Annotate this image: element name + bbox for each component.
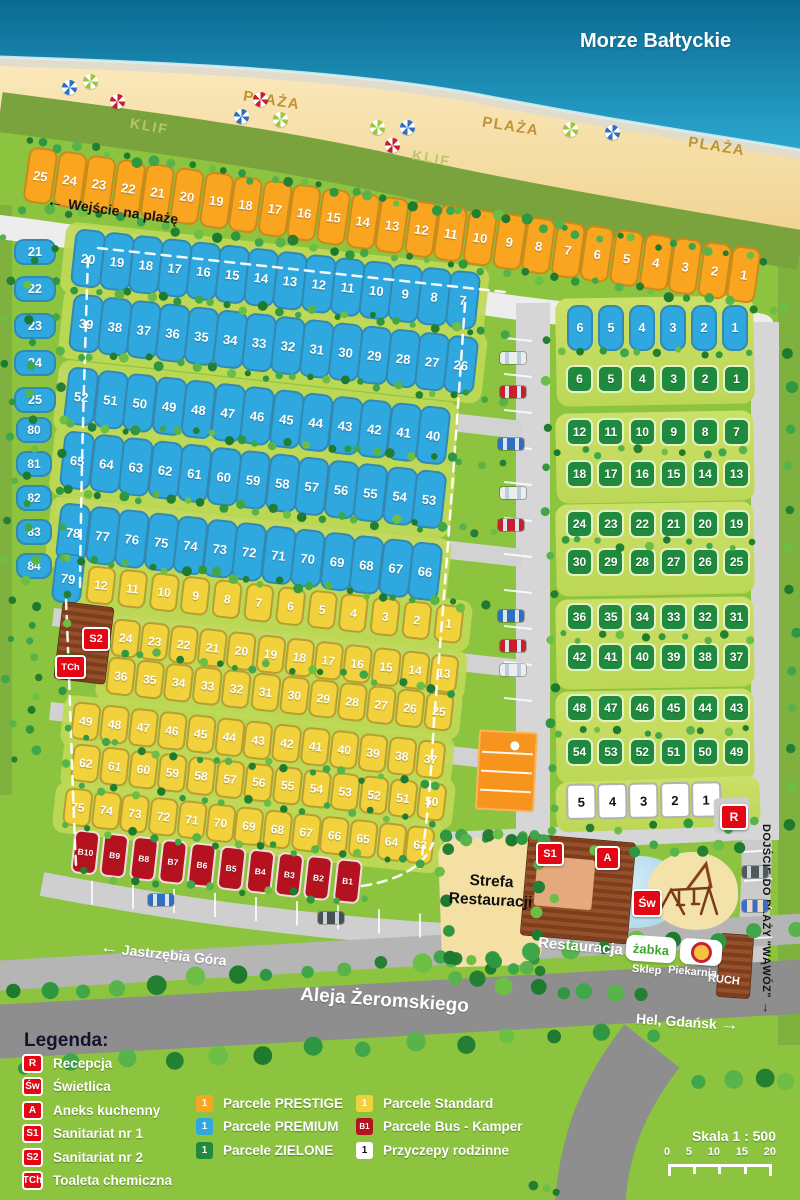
umbrella-icon [605, 125, 620, 140]
legend-label: Toaleta chemiczna [53, 1173, 172, 1188]
parked-car [500, 386, 526, 398]
parked-car [500, 664, 526, 676]
plot-bus-B1[interactable]: B1 [332, 858, 363, 905]
plot-zielone-46[interactable]: 46 [629, 694, 656, 722]
scale-ruler [668, 1164, 772, 1177]
legend-item-s2: S2Sanitariat nr 2 [22, 1146, 143, 1168]
legend-chip-white: 1 [356, 1142, 373, 1159]
plot-standard-16[interactable]: 16 [341, 644, 373, 685]
plot-premium-40[interactable]: 40 [414, 405, 451, 466]
parked-car [318, 912, 344, 924]
plot-zielone-2[interactable]: 2 [692, 365, 719, 393]
plot-zielone-16[interactable]: 16 [629, 460, 656, 488]
umbrella-icon [110, 94, 125, 109]
plot-standard-61[interactable]: 61 [99, 746, 131, 787]
plot-zielone-48[interactable]: 48 [566, 694, 593, 722]
plot-standard-48[interactable]: 48 [99, 704, 131, 745]
plot-zielone-6[interactable]: 6 [566, 365, 593, 393]
plot-standard-44[interactable]: 44 [213, 717, 245, 758]
plot-standard-30[interactable]: 30 [278, 675, 310, 716]
plot-zielone-30[interactable]: 30 [566, 548, 593, 576]
plot-standard-38[interactable]: 38 [386, 736, 418, 777]
scale-tick: 0 [664, 1146, 670, 1158]
plot-bus-B6[interactable]: B6 [187, 842, 218, 889]
legend-badge-s2: S2 [22, 1148, 43, 1167]
plot-zielone-31[interactable]: 31 [723, 603, 750, 631]
legend-chip-bus: B1 [356, 1118, 373, 1135]
plot-standard-9[interactable]: 9 [180, 575, 212, 616]
plot-standard-59[interactable]: 59 [156, 753, 188, 794]
plot-premium-83[interactable]: 83 [16, 519, 52, 545]
legend-badge-a: A [22, 1101, 43, 1120]
plot-premium-2[interactable]: 2 [691, 305, 717, 351]
clubroom-badge[interactable]: Św [632, 889, 662, 917]
left-arrow-icon: ← [45, 190, 66, 212]
plot-standard-7[interactable]: 7 [243, 582, 275, 623]
legend-item-zielone: 1Parcele ZIELONE [196, 1139, 333, 1161]
scale-tick: 10 [708, 1146, 720, 1158]
plot-standard-2[interactable]: 2 [401, 600, 433, 641]
plot-standard-11[interactable]: 11 [116, 568, 148, 609]
legend-item-r: RRecepcja [22, 1052, 112, 1074]
plot-zielone-47[interactable]: 47 [597, 694, 624, 722]
plot-standard-58[interactable]: 58 [185, 756, 217, 797]
legend-item-bus: B1Parcele Bus - Kamper [356, 1116, 523, 1138]
zabka-logo[interactable]: żabka [625, 934, 677, 963]
plot-zielone-32[interactable]: 32 [692, 603, 719, 631]
plot-standard-64[interactable]: 64 [376, 822, 408, 863]
plot-premium-22[interactable]: 22 [14, 276, 56, 302]
plot-premium-24[interactable]: 24 [14, 350, 56, 376]
plot-white-3[interactable]: 3 [628, 782, 659, 819]
plot-standard-49[interactable]: 49 [70, 701, 102, 742]
bakery-logo[interactable] [679, 938, 723, 967]
campground-map: 2524232221201918171615141312111098765432… [0, 0, 800, 1200]
umbrella-icon [370, 120, 385, 135]
plot-premium-5[interactable]: 5 [598, 305, 624, 351]
plot-zielone-33[interactable]: 33 [660, 603, 687, 631]
legend-item-white: 1Przyczepy rodzinne [356, 1139, 509, 1161]
plot-premium-25[interactable]: 25 [14, 387, 56, 413]
plot-standard-27[interactable]: 27 [365, 685, 397, 726]
legend-label: Przyczepy rodzinne [383, 1143, 509, 1158]
plot-zielone-51[interactable]: 51 [660, 738, 687, 766]
slide-icon [688, 864, 711, 888]
plot-standard-54[interactable]: 54 [300, 768, 332, 809]
plot-standard-63[interactable]: 63 [404, 825, 436, 866]
court-line [482, 751, 533, 756]
plot-standard-57[interactable]: 57 [214, 759, 246, 800]
legend-badge-tch: TCh [22, 1171, 43, 1190]
plot-standard-15[interactable]: 15 [370, 647, 402, 688]
plot-zielone-22[interactable]: 22 [629, 510, 656, 538]
plot-zielone-20[interactable]: 20 [692, 510, 719, 538]
kiosk-building [716, 933, 754, 999]
swing-icon [658, 888, 717, 914]
umbrella-icon [234, 109, 249, 124]
umbrella-icon [83, 74, 98, 89]
plot-standard-66[interactable]: 66 [319, 815, 351, 856]
plot-bus-B9[interactable]: B9 [99, 832, 130, 879]
plot-standard-3[interactable]: 3 [369, 596, 401, 637]
restaurant-zone-label: Strefa Restauracji [440, 869, 542, 912]
plot-standard-74[interactable]: 74 [90, 790, 122, 831]
legend-item-standard: 1Parcele Standard [356, 1092, 493, 1114]
plot-standard-6[interactable]: 6 [274, 586, 306, 627]
plot-premium-80[interactable]: 80 [16, 417, 52, 443]
plot-premium-21[interactable]: 21 [14, 239, 56, 265]
plot-standard-56[interactable]: 56 [243, 762, 275, 803]
plot-standard-73[interactable]: 73 [119, 793, 151, 834]
plot-premium-4[interactable]: 4 [629, 305, 655, 351]
plot-standard-20[interactable]: 20 [226, 631, 258, 672]
umbrella-icon [385, 138, 400, 153]
plot-zielone-40[interactable]: 40 [629, 643, 656, 671]
plot-zielone-9[interactable]: 9 [660, 418, 687, 446]
plot-zielone-7[interactable]: 7 [723, 418, 750, 446]
scale-tick: 15 [736, 1146, 748, 1158]
plot-premium-23[interactable]: 23 [14, 313, 56, 339]
plot-zielone-50[interactable]: 50 [692, 738, 719, 766]
plot-zielone-53[interactable]: 53 [597, 738, 624, 766]
plot-zielone-5[interactable]: 5 [597, 365, 624, 393]
right-arrow-icon: → [720, 1013, 739, 1034]
parked-car [742, 900, 768, 912]
plot-bus-B5[interactable]: B5 [216, 845, 247, 892]
legend-item-premium: 1Parcele PREMIUM [196, 1116, 339, 1138]
plot-standard-19[interactable]: 19 [254, 634, 286, 675]
down-arrow-icon: → [760, 1001, 775, 1014]
plot-bus-B10[interactable]: B10 [70, 829, 101, 876]
plot-zielone-12[interactable]: 12 [566, 418, 593, 446]
plot-zielone-11[interactable]: 11 [597, 418, 624, 446]
plot-zielone-21[interactable]: 21 [660, 510, 687, 538]
plot-prestige-1[interactable]: 1 [726, 245, 763, 304]
plot-standard-33[interactable]: 33 [192, 666, 224, 707]
umbrella-icon [253, 92, 268, 107]
parked-car [500, 640, 526, 652]
umbrella-icon [273, 112, 288, 127]
plot-standard-45[interactable]: 45 [185, 714, 217, 755]
plot-standard-23[interactable]: 23 [139, 621, 171, 662]
plot-white-2[interactable]: 2 [660, 782, 691, 819]
plot-bus-B8[interactable]: B8 [128, 835, 159, 882]
plot-premium-82[interactable]: 82 [16, 485, 52, 511]
plot-standard-4[interactable]: 4 [338, 593, 370, 634]
plot-standard-28[interactable]: 28 [336, 682, 368, 723]
plot-zielone-37[interactable]: 37 [723, 643, 750, 671]
sanitary1-badge[interactable]: S1 [536, 842, 564, 866]
umbrella-icon [563, 122, 578, 137]
scale-tick: 5 [686, 1146, 692, 1158]
plot-standard-70[interactable]: 70 [204, 803, 236, 844]
plot-standard-62[interactable]: 62 [70, 743, 102, 784]
plot-zielone-25[interactable]: 25 [723, 548, 750, 576]
plot-standard-72[interactable]: 72 [147, 796, 179, 837]
parked-car [498, 438, 524, 450]
plot-white-4[interactable]: 4 [597, 783, 628, 820]
legend-item-prestige: 1Parcele PRESTIGE [196, 1092, 343, 1114]
plot-zielone-52[interactable]: 52 [629, 738, 656, 766]
playground-icons [650, 854, 742, 930]
parked-car [498, 519, 524, 531]
plot-premium-1[interactable]: 1 [722, 305, 748, 351]
plot-premium-26[interactable]: 26 [442, 334, 479, 395]
legend-label: Parcele Bus - Kamper [383, 1119, 523, 1134]
plot-zielone-45[interactable]: 45 [660, 694, 687, 722]
legend-badge-r: R [22, 1054, 43, 1073]
volleyball-icon [510, 741, 519, 750]
plot-premium-3[interactable]: 3 [660, 305, 686, 351]
plot-standard-18[interactable]: 18 [283, 637, 315, 678]
plot-standard-14[interactable]: 14 [399, 650, 431, 691]
plot-standard-55[interactable]: 55 [272, 765, 304, 806]
plot-premium-66[interactable]: 66 [406, 541, 443, 602]
scale-tick: 20 [764, 1146, 776, 1158]
plot-standard-43[interactable]: 43 [242, 720, 274, 761]
plot-standard-71[interactable]: 71 [176, 800, 208, 841]
zabka-logo-text: żabka [632, 940, 669, 957]
scale-ticks: 05101520 [664, 1146, 776, 1158]
parked-car [742, 866, 768, 878]
legend-item-tch: TChToaleta chemiczna [22, 1170, 172, 1192]
legend-item-s1: S1Sanitariat nr 1 [22, 1123, 143, 1145]
left-arrow-icon: ← [99, 936, 119, 958]
plot-zielone-26[interactable]: 26 [692, 548, 719, 576]
plot-zielone-54[interactable]: 54 [566, 738, 593, 766]
plot-standard-75[interactable]: 75 [62, 787, 94, 828]
reception-badge[interactable]: R [720, 804, 748, 830]
plot-zielone-18[interactable]: 18 [566, 460, 593, 488]
plot-zielone-13[interactable]: 13 [723, 460, 750, 488]
legend-badge-św: Św [22, 1077, 43, 1096]
plot-standard-67[interactable]: 67 [290, 812, 322, 853]
parked-car [500, 487, 526, 499]
plot-standard-12[interactable]: 12 [85, 565, 117, 606]
gorge-road-label: DOJŚCIE DO PLAŻY "WĄWÓZ" → [760, 824, 774, 1024]
parked-car [500, 352, 526, 364]
plot-premium-6[interactable]: 6 [567, 305, 593, 351]
plot-standard-52[interactable]: 52 [358, 775, 390, 816]
plot-standard-13[interactable]: 13 [428, 653, 460, 694]
legend-label: Aneks kuchenny [53, 1103, 160, 1118]
legend-label: Sanitariat nr 2 [53, 1150, 143, 1165]
legend-chip-prestige: 1 [196, 1095, 213, 1112]
plot-standard-26[interactable]: 26 [394, 688, 426, 729]
plot-standard-60[interactable]: 60 [127, 749, 159, 790]
legend-label: Recepcja [53, 1056, 112, 1071]
plot-zielone-14[interactable]: 14 [692, 460, 719, 488]
plot-zielone-34[interactable]: 34 [629, 603, 656, 631]
plot-standard-1[interactable]: 1 [433, 603, 465, 644]
plot-bus-B3[interactable]: B3 [274, 852, 305, 899]
plot-premium-7[interactable]: 7 [444, 269, 481, 330]
plot-zielone-19[interactable]: 19 [723, 510, 750, 538]
sea-label: Morze Bałtyckie [580, 30, 731, 53]
plot-zielone-42[interactable]: 42 [566, 643, 593, 671]
plot-zielone-1[interactable]: 1 [723, 365, 750, 393]
plot-standard-17[interactable]: 17 [312, 640, 344, 681]
legend-label: Świetlica [53, 1079, 111, 1094]
legend-label: Sanitariat nr 1 [53, 1126, 143, 1141]
plot-standard-36[interactable]: 36 [105, 656, 137, 697]
plot-premium-79[interactable]: 79 [51, 552, 86, 605]
legend-label: Parcele Standard [383, 1096, 493, 1111]
plot-zielone-38[interactable]: 38 [692, 643, 719, 671]
plot-bus-B7[interactable]: B7 [158, 839, 189, 886]
parked-car [498, 610, 524, 622]
plot-standard-8[interactable]: 8 [211, 579, 243, 620]
plot-standard-68[interactable]: 68 [262, 809, 294, 850]
plot-standard-53[interactable]: 53 [329, 772, 361, 813]
plot-premium-84[interactable]: 84 [16, 553, 52, 579]
plot-zielone-4[interactable]: 4 [629, 365, 656, 393]
plot-zielone-41[interactable]: 41 [597, 643, 624, 671]
plot-standard-24[interactable]: 24 [110, 618, 142, 659]
plot-zielone-24[interactable]: 24 [566, 510, 593, 538]
plot-standard-31[interactable]: 31 [249, 672, 281, 713]
bakery-logo-icon [690, 941, 712, 963]
plot-standard-34[interactable]: 34 [163, 662, 195, 703]
legend-item-a: AAneks kuchenny [22, 1099, 160, 1121]
chemical-toilet-badge[interactable]: TCh [55, 655, 86, 679]
plot-standard-65[interactable]: 65 [347, 818, 379, 859]
plot-standard-25[interactable]: 25 [423, 691, 455, 732]
plot-zielone-27[interactable]: 27 [660, 548, 687, 576]
legend-badge-s1: S1 [22, 1124, 43, 1143]
plot-standard-22[interactable]: 22 [168, 624, 200, 665]
plot-standard-41[interactable]: 41 [300, 726, 332, 767]
court-line [480, 789, 531, 794]
plot-standard-37[interactable]: 37 [415, 739, 447, 780]
plot-standard-40[interactable]: 40 [328, 730, 360, 771]
plot-zielone-35[interactable]: 35 [597, 603, 624, 631]
umbrella-icon [400, 120, 415, 135]
plot-standard-29[interactable]: 29 [307, 678, 339, 719]
scale-label: Skala 1 : 500 [664, 1128, 776, 1144]
plot-bus-B2[interactable]: B2 [303, 855, 334, 902]
plot-standard-39[interactable]: 39 [357, 733, 389, 774]
legend-label: Parcele PRESTIGE [223, 1096, 343, 1111]
plot-standard-32[interactable]: 32 [221, 669, 253, 710]
shop-label: Sklep [632, 963, 662, 978]
umbrella-icon [62, 80, 77, 95]
plot-zielone-28[interactable]: 28 [629, 548, 656, 576]
plot-standard-69[interactable]: 69 [233, 806, 265, 847]
court-line [481, 770, 532, 775]
plot-zielone-29[interactable]: 29 [597, 548, 624, 576]
plot-zielone-39[interactable]: 39 [660, 643, 687, 671]
legend-chip-standard: 1 [356, 1095, 373, 1112]
plot-zielone-3[interactable]: 3 [660, 365, 687, 393]
plot-standard-5[interactable]: 5 [306, 589, 338, 630]
plot-standard-35[interactable]: 35 [134, 659, 166, 700]
plot-standard-42[interactable]: 42 [271, 723, 303, 764]
plot-standard-21[interactable]: 21 [197, 628, 229, 669]
plot-premium-53[interactable]: 53 [410, 469, 447, 530]
plot-premium-81[interactable]: 81 [16, 451, 52, 477]
plot-standard-50[interactable]: 50 [416, 781, 448, 822]
plot-zielone-36[interactable]: 36 [566, 603, 593, 631]
sanitary2-badge[interactable]: S2 [82, 627, 110, 651]
plot-zielone-43[interactable]: 43 [723, 694, 750, 722]
parked-car [148, 894, 174, 906]
plot-standard-46[interactable]: 46 [156, 711, 188, 752]
plot-standard-10[interactable]: 10 [148, 572, 180, 613]
legend-chip-zielone: 1 [196, 1142, 213, 1159]
legend-label: Parcele ZIELONE [223, 1143, 333, 1158]
plot-zielone-23[interactable]: 23 [597, 510, 624, 538]
plot-zielone-10[interactable]: 10 [629, 418, 656, 446]
plot-bus-B4[interactable]: B4 [245, 848, 276, 895]
plot-standard-47[interactable]: 47 [127, 707, 159, 748]
plot-zielone-49[interactable]: 49 [723, 738, 750, 766]
legend-label: Parcele PREMIUM [223, 1119, 339, 1134]
plot-zielone-17[interactable]: 17 [597, 460, 624, 488]
legend-title: Legenda: [24, 1030, 108, 1052]
plot-zielone-44[interactable]: 44 [692, 694, 719, 722]
plot-standard-51[interactable]: 51 [387, 778, 419, 819]
plot-white-5[interactable]: 5 [566, 783, 597, 820]
plot-zielone-8[interactable]: 8 [692, 418, 719, 446]
legend-item-św: ŚwŚwietlica [22, 1076, 111, 1098]
legend-chip-premium: 1 [196, 1118, 213, 1135]
volleyball-court [475, 730, 538, 813]
kitchen-badge[interactable]: A [595, 846, 620, 870]
plot-zielone-15[interactable]: 15 [660, 460, 687, 488]
